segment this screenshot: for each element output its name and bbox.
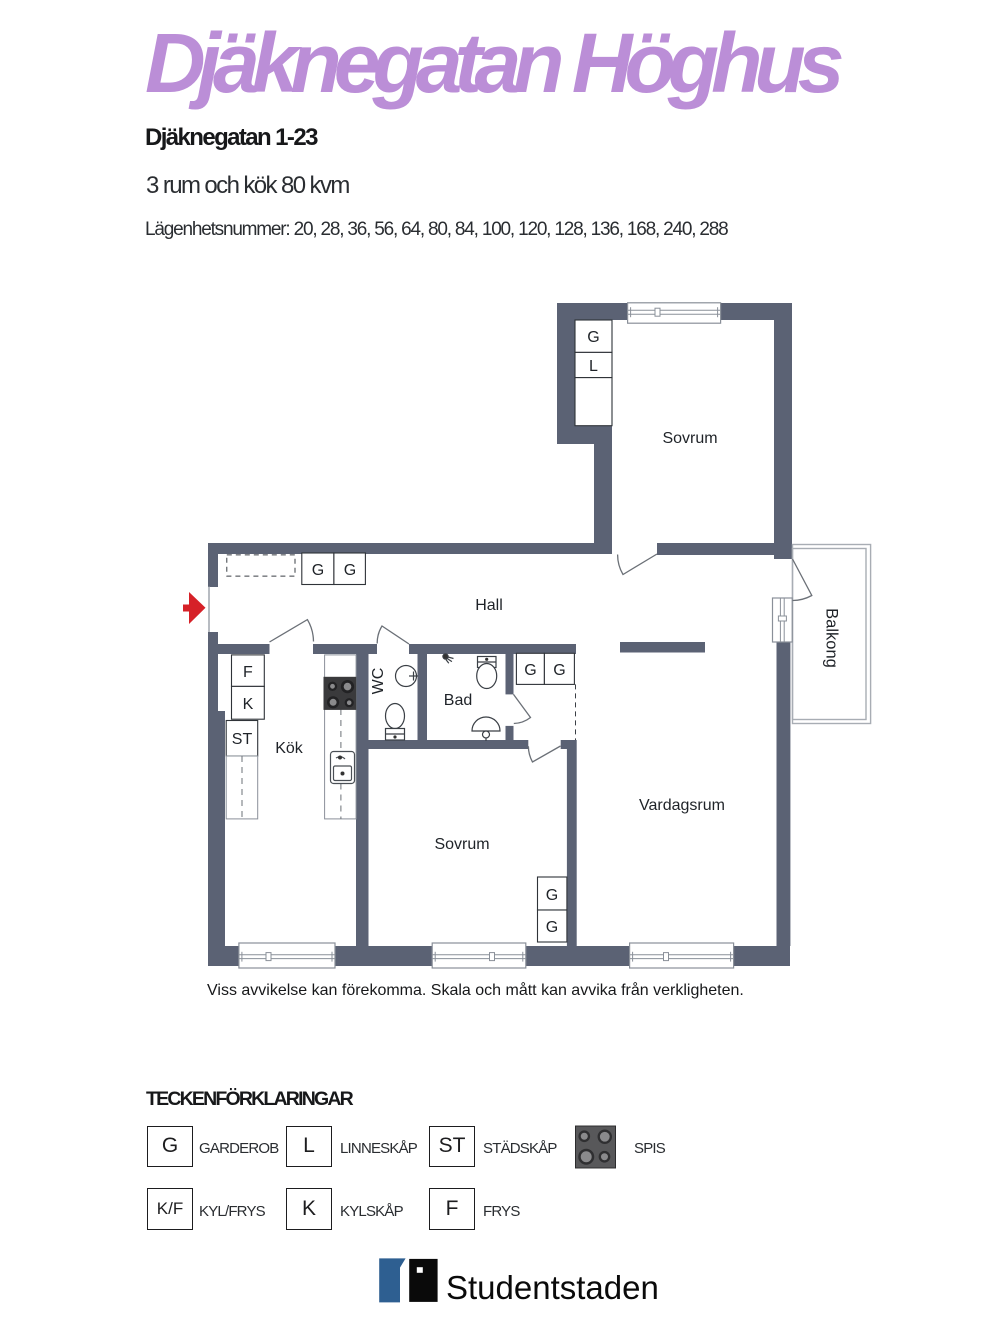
svg-text:Kök: Kök (275, 740, 304, 757)
svg-text:Vardagsrum: Vardagsrum (639, 797, 725, 814)
svg-text:G: G (546, 887, 558, 904)
svg-text:G: G (546, 919, 558, 936)
svg-text:Hall: Hall (475, 597, 503, 614)
svg-text:G: G (587, 329, 599, 346)
svg-text:Bad: Bad (444, 692, 472, 709)
svg-text:L: L (589, 358, 598, 375)
svg-text:Balkong: Balkong (823, 608, 841, 668)
svg-text:G: G (524, 662, 536, 679)
svg-text:Sovrum: Sovrum (662, 430, 717, 447)
svg-text:K: K (243, 696, 254, 713)
svg-text:WC: WC (370, 668, 387, 695)
svg-text:F: F (243, 664, 253, 681)
svg-text:G: G (344, 562, 356, 579)
svg-text:Sovrum: Sovrum (434, 836, 489, 853)
svg-text:ST: ST (232, 731, 253, 748)
svg-text:G: G (553, 662, 565, 679)
svg-text:G: G (312, 562, 324, 579)
